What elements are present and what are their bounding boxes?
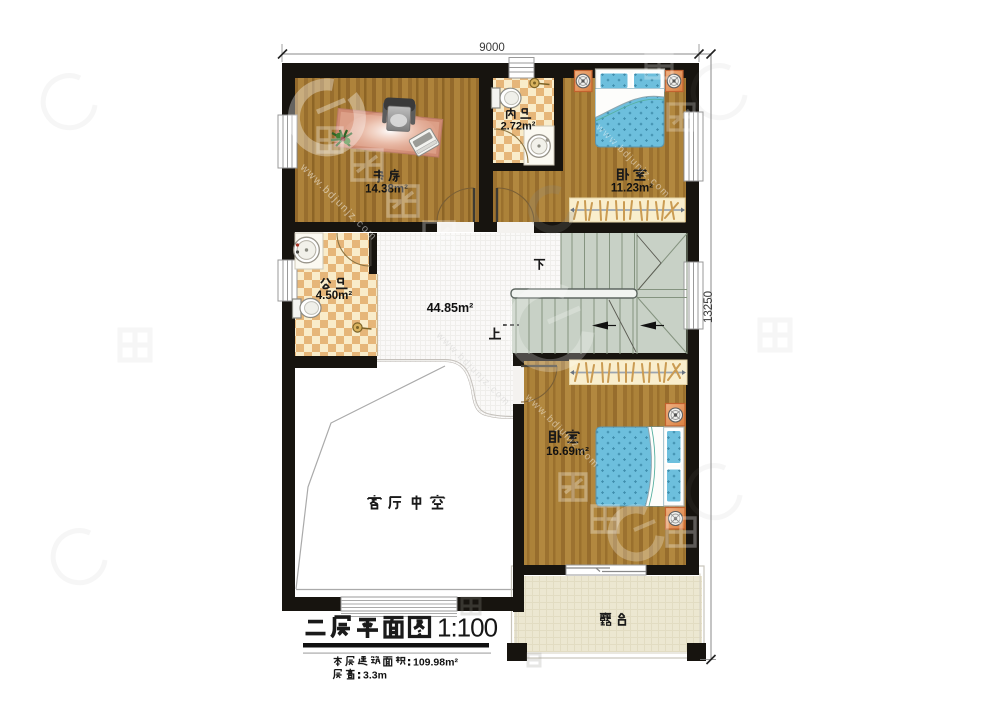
- svg-text:11.23m²: 11.23m²: [611, 183, 653, 195]
- svg-text:9000: 9000: [479, 42, 505, 54]
- svg-text:109.98m²: 109.98m²: [413, 657, 458, 669]
- svg-text:1:100: 1:100: [437, 613, 498, 643]
- svg-text:2.72m²: 2.72m²: [501, 121, 536, 133]
- svg-text:4.50m²: 4.50m²: [316, 290, 353, 302]
- svg-text:13250: 13250: [703, 291, 715, 323]
- svg-text:3.3m: 3.3m: [363, 670, 387, 682]
- svg-text:44.85m²: 44.85m²: [427, 301, 474, 315]
